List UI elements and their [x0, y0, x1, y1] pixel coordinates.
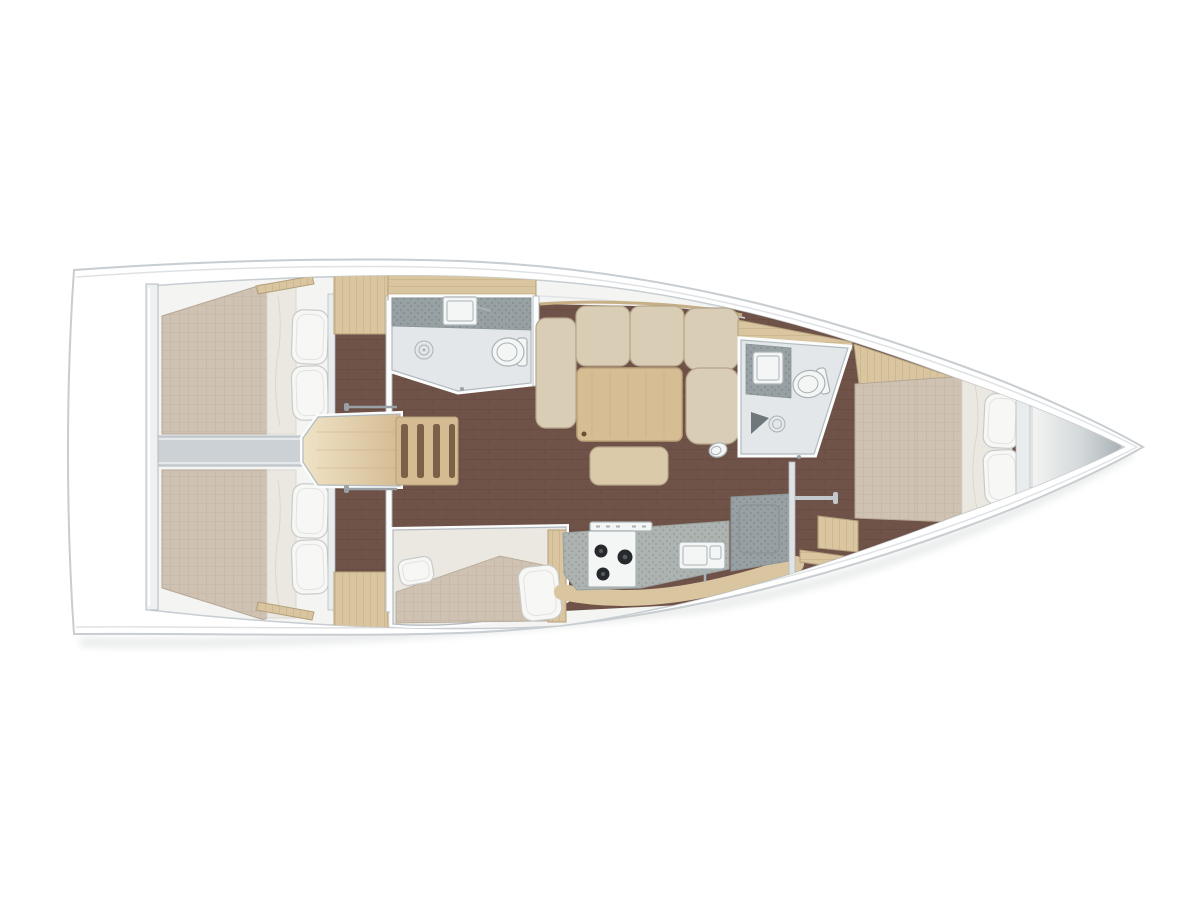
pillow: [291, 483, 329, 538]
handhold-end: [833, 492, 838, 504]
stair-slot: [401, 424, 408, 478]
door-handle: [460, 387, 464, 391]
door-handle: [797, 455, 801, 459]
bench-seat: [818, 516, 858, 552]
toilet: [492, 338, 527, 366]
pillow: [983, 393, 1022, 449]
pillow: [291, 539, 329, 594]
stair-slot: [449, 424, 455, 478]
transom-wall: [146, 284, 158, 610]
floorplan-canvas: Sailing yacht interior layout — top-view…: [0, 0, 1200, 900]
sofa-chaise-cushion: [536, 318, 576, 428]
cabin-floor: [334, 478, 386, 572]
sofa-back-cushion: [630, 306, 684, 366]
sofa-corner-cushion: [684, 308, 739, 370]
pillow: [291, 365, 329, 420]
rail-end: [344, 403, 349, 411]
handhold-rail: [795, 496, 835, 500]
yacht-floorplan: Sailing yacht interior layout — top-view…: [0, 0, 1200, 900]
interior: [150, 266, 1122, 640]
settee-berth: [393, 527, 566, 625]
stair-slot: [417, 424, 424, 478]
table-fiddle: [582, 432, 587, 437]
sofa-side-cushion: [686, 368, 739, 444]
rail-end: [344, 485, 349, 493]
pillow: [291, 309, 329, 364]
sofa-back-cushion: [576, 306, 630, 366]
pillow: [397, 555, 435, 587]
companionway: [303, 403, 458, 493]
salon-table: [577, 368, 682, 441]
mast-bulkhead: [789, 462, 795, 574]
stool: [590, 447, 668, 485]
stair-slot: [433, 424, 440, 478]
island-bed-mattress: [855, 377, 966, 522]
bed-linen: [267, 286, 296, 434]
bed-linen: [267, 470, 296, 618]
aft-head: [388, 268, 539, 391]
cabin-divider-wall: [150, 436, 320, 466]
